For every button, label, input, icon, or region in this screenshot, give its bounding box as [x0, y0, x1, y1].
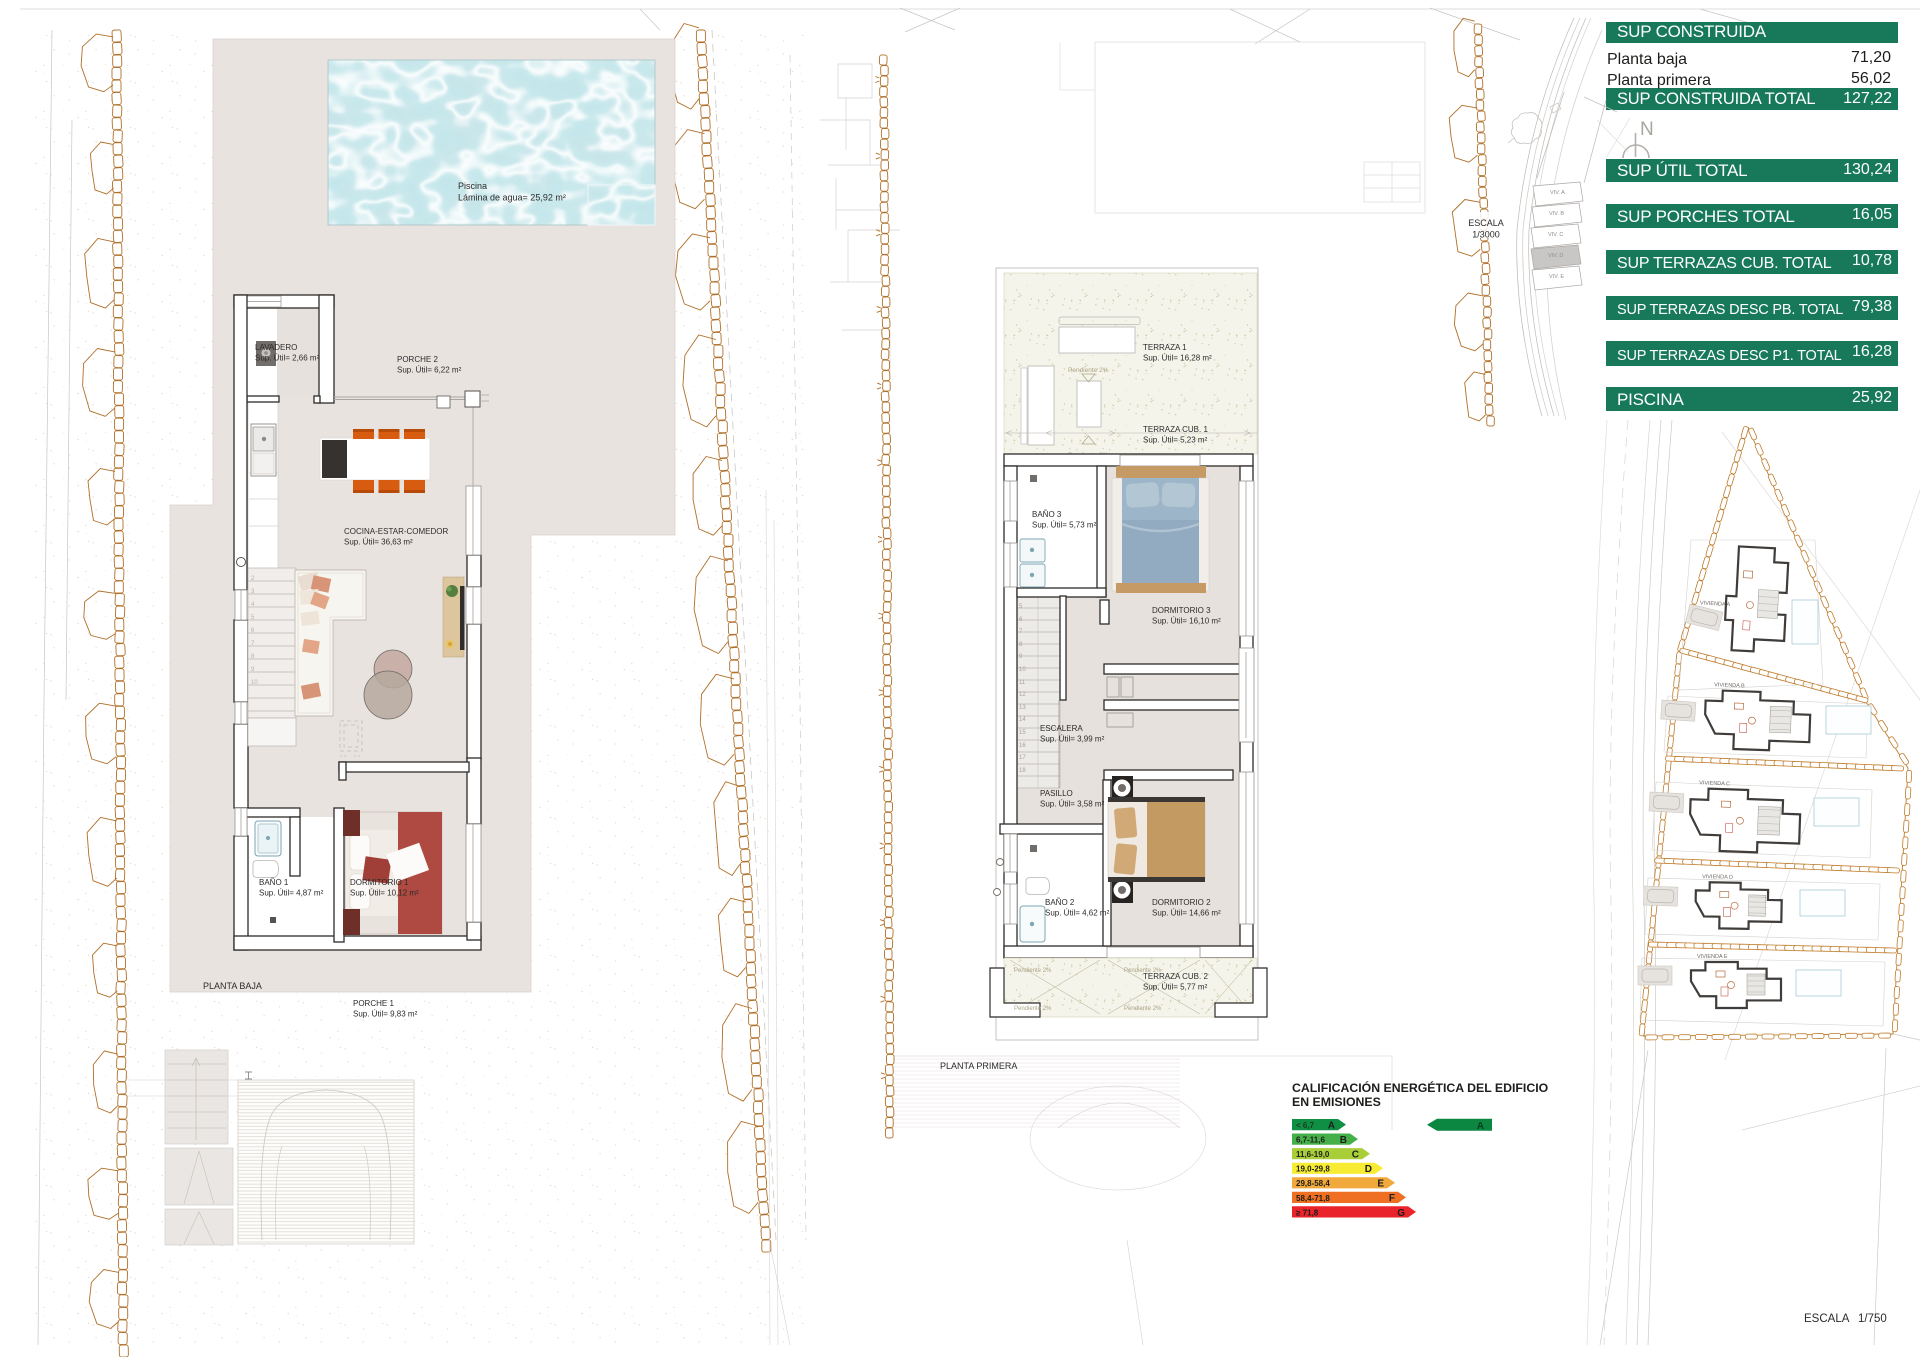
- svg-text:PORCHE 1: PORCHE 1: [353, 999, 394, 1008]
- svg-text:11,6-19,0: 11,6-19,0: [1296, 1150, 1330, 1159]
- svg-text:Sup. Útil= 16,10 m²: Sup. Útil= 16,10 m²: [1152, 616, 1221, 625]
- svg-text:C: C: [1352, 1150, 1359, 1161]
- svg-text:VIVIENDA D: VIVIENDA D: [1702, 874, 1733, 881]
- svg-text:Sup. Útil= 4,62 m²: Sup. Útil= 4,62 m²: [1045, 908, 1110, 917]
- svg-text:71,20: 71,20: [1851, 49, 1891, 66]
- svg-text:DORMITORIO 3: DORMITORIO 3: [1152, 606, 1211, 615]
- svg-text:VIV. E: VIV. E: [1549, 274, 1564, 280]
- svg-text:N: N: [1640, 119, 1654, 140]
- svg-text:PLANTA BAJA: PLANTA BAJA: [203, 981, 262, 991]
- svg-text:Sup. Útil= 4,87 m²: Sup. Útil= 4,87 m²: [259, 888, 324, 897]
- svg-text:12: 12: [1019, 692, 1026, 698]
- svg-text:BAÑO 2: BAÑO 2: [1045, 898, 1075, 907]
- svg-text:1/750: 1/750: [1858, 1313, 1887, 1325]
- svg-text:15: 15: [1019, 730, 1026, 736]
- svg-text:130,24: 130,24: [1843, 161, 1892, 178]
- svg-text:A: A: [1477, 1121, 1484, 1132]
- svg-text:SUP CONSTRUIDA: SUP CONSTRUIDA: [1617, 22, 1767, 41]
- svg-text:CALIFICACIÓN ENERGÉTICA DEL ED: CALIFICACIÓN ENERGÉTICA DEL EDIFICIO: [1292, 1080, 1549, 1095]
- svg-text:13: 13: [1019, 705, 1026, 711]
- svg-text:A: A: [1328, 1121, 1335, 1132]
- svg-text:G: G: [1397, 1208, 1405, 1219]
- svg-text:ESCALERA: ESCALERA: [1040, 724, 1083, 733]
- svg-text:DORMITORIO 2: DORMITORIO 2: [1152, 898, 1211, 907]
- svg-text:E: E: [1377, 1179, 1384, 1190]
- svg-text:Pendiente 2%: Pendiente 2%: [1014, 1006, 1052, 1012]
- svg-text:TERRAZA 1: TERRAZA 1: [1143, 343, 1187, 352]
- svg-text:PORCHE 2: PORCHE 2: [397, 355, 438, 364]
- svg-text:25,92: 25,92: [1852, 389, 1892, 406]
- svg-text:Sup. Útil= 36,63 m²: Sup. Útil= 36,63 m²: [344, 537, 413, 546]
- svg-text:16,28: 16,28: [1852, 343, 1892, 360]
- svg-text:< 6,7: < 6,7: [1296, 1121, 1315, 1130]
- svg-text:≥ 71,8: ≥ 71,8: [1296, 1208, 1319, 1217]
- svg-text:14: 14: [1019, 717, 1026, 723]
- svg-text:56,02: 56,02: [1851, 70, 1891, 87]
- svg-text:COCINA-ESTAR-COMEDOR: COCINA-ESTAR-COMEDOR: [344, 527, 449, 536]
- svg-text:LAVADERO: LAVADERO: [255, 343, 297, 352]
- svg-text:VIVIENDA B: VIVIENDA B: [1714, 682, 1745, 689]
- svg-text:Pendiente 2%: Pendiente 2%: [1014, 968, 1052, 974]
- svg-text:SUP TERRAZAS DESC PB. TOTAL: SUP TERRAZAS DESC PB. TOTAL: [1617, 302, 1843, 318]
- svg-text:79,38: 79,38: [1852, 298, 1892, 315]
- svg-text:BAÑO 3: BAÑO 3: [1032, 510, 1062, 519]
- svg-text:TERRAZA CUB. 1: TERRAZA CUB. 1: [1143, 425, 1208, 434]
- svg-text:29,8-58,4: 29,8-58,4: [1296, 1179, 1330, 1188]
- svg-text:D: D: [1365, 1164, 1372, 1175]
- svg-text:Pendiente 2%: Pendiente 2%: [1124, 968, 1162, 974]
- svg-text:1/3000: 1/3000: [1472, 229, 1500, 239]
- svg-text:11: 11: [1019, 680, 1026, 686]
- svg-text:Lámina de agua= 25,92 m²: Lámina de agua= 25,92 m²: [458, 192, 566, 202]
- svg-text:VIV. B: VIV. B: [1549, 211, 1564, 217]
- svg-text:Sup. Útil= 2,66 m²: Sup. Útil= 2,66 m²: [255, 353, 320, 362]
- svg-text:58,4-71,8: 58,4-71,8: [1296, 1194, 1330, 1203]
- svg-text:18: 18: [1019, 768, 1026, 774]
- svg-text:EN EMISIONES: EN EMISIONES: [1292, 1095, 1381, 1109]
- svg-text:Sup. Útil= 5,23 m²: Sup. Útil= 5,23 m²: [1143, 435, 1208, 444]
- svg-text:10: 10: [1019, 667, 1026, 673]
- svg-text:17: 17: [1019, 755, 1026, 761]
- svg-text:Sup. Útil= 9,83 m²: Sup. Útil= 9,83 m²: [353, 1009, 418, 1018]
- svg-text:6,7-11,6: 6,7-11,6: [1296, 1136, 1325, 1145]
- svg-text:Planta baja: Planta baja: [1607, 51, 1687, 68]
- svg-text:19,0-29,8: 19,0-29,8: [1296, 1165, 1330, 1174]
- svg-text:127,22: 127,22: [1843, 90, 1892, 107]
- svg-text:B: B: [1340, 1135, 1347, 1146]
- svg-text:BAÑO 1: BAÑO 1: [259, 878, 289, 887]
- svg-text:10,78: 10,78: [1852, 252, 1892, 269]
- svg-text:PISCINA: PISCINA: [1617, 390, 1684, 409]
- svg-text:Pendiente 2%: Pendiente 2%: [1124, 1006, 1162, 1012]
- svg-text:Piscina: Piscina: [458, 181, 487, 191]
- svg-text:Sup. Útil= 5,77 m²: Sup. Útil= 5,77 m²: [1143, 982, 1208, 991]
- svg-text:10: 10: [251, 680, 258, 686]
- svg-text:ESCALA: ESCALA: [1468, 218, 1504, 228]
- svg-text:Sup. Útil= 3,99 m²: Sup. Útil= 3,99 m²: [1040, 734, 1105, 743]
- svg-text:SUP TERRAZAS CUB. TOTAL: SUP TERRAZAS CUB. TOTAL: [1617, 255, 1832, 272]
- svg-text:SUP ÚTIL TOTAL: SUP ÚTIL TOTAL: [1617, 161, 1747, 180]
- svg-text:Sup. Útil= 5,73 m²: Sup. Útil= 5,73 m²: [1032, 520, 1097, 529]
- svg-text:SUP CONSTRUIDA TOTAL: SUP CONSTRUIDA TOTAL: [1617, 90, 1815, 108]
- svg-text:Sup. Útil= 10,12 m²: Sup. Útil= 10,12 m²: [350, 888, 419, 897]
- svg-text:F: F: [1389, 1193, 1395, 1204]
- svg-text:Planta primera: Planta primera: [1607, 72, 1711, 89]
- svg-text:SUP PORCHES TOTAL: SUP PORCHES TOTAL: [1617, 207, 1795, 226]
- svg-text:PLANTA PRIMERA: PLANTA PRIMERA: [940, 1061, 1017, 1071]
- svg-text:Sup. Útil= 6,22 m²: Sup. Útil= 6,22 m²: [397, 365, 462, 374]
- svg-text:16,05: 16,05: [1852, 206, 1892, 223]
- svg-text:VIVIENDA E: VIVIENDA E: [1697, 954, 1728, 960]
- svg-text:Sup. Útil= 3,58 m²: Sup. Útil= 3,58 m²: [1040, 799, 1105, 808]
- svg-text:VIV. A: VIV. A: [1550, 190, 1565, 196]
- svg-text:VIV. D: VIV. D: [1548, 253, 1563, 259]
- svg-text:PASILLO: PASILLO: [1040, 789, 1073, 798]
- svg-text:ESCALA: ESCALA: [1804, 1313, 1850, 1325]
- svg-text:SUP TERRAZAS DESC P1. TOTAL: SUP TERRAZAS DESC P1. TOTAL: [1617, 348, 1842, 364]
- svg-text:Pendiente 2%: Pendiente 2%: [1068, 367, 1109, 374]
- svg-text:DORMITORIO 1: DORMITORIO 1: [350, 878, 409, 887]
- svg-text:VIV. C: VIV. C: [1548, 232, 1563, 238]
- svg-text:Sup. Útil= 14,66 m²: Sup. Útil= 14,66 m²: [1152, 908, 1221, 917]
- svg-text:16: 16: [1019, 743, 1026, 749]
- svg-text:VIVIENDA C: VIVIENDA C: [1699, 780, 1730, 787]
- svg-text:Sup. Útil= 16,28 m²: Sup. Útil= 16,28 m²: [1143, 353, 1212, 362]
